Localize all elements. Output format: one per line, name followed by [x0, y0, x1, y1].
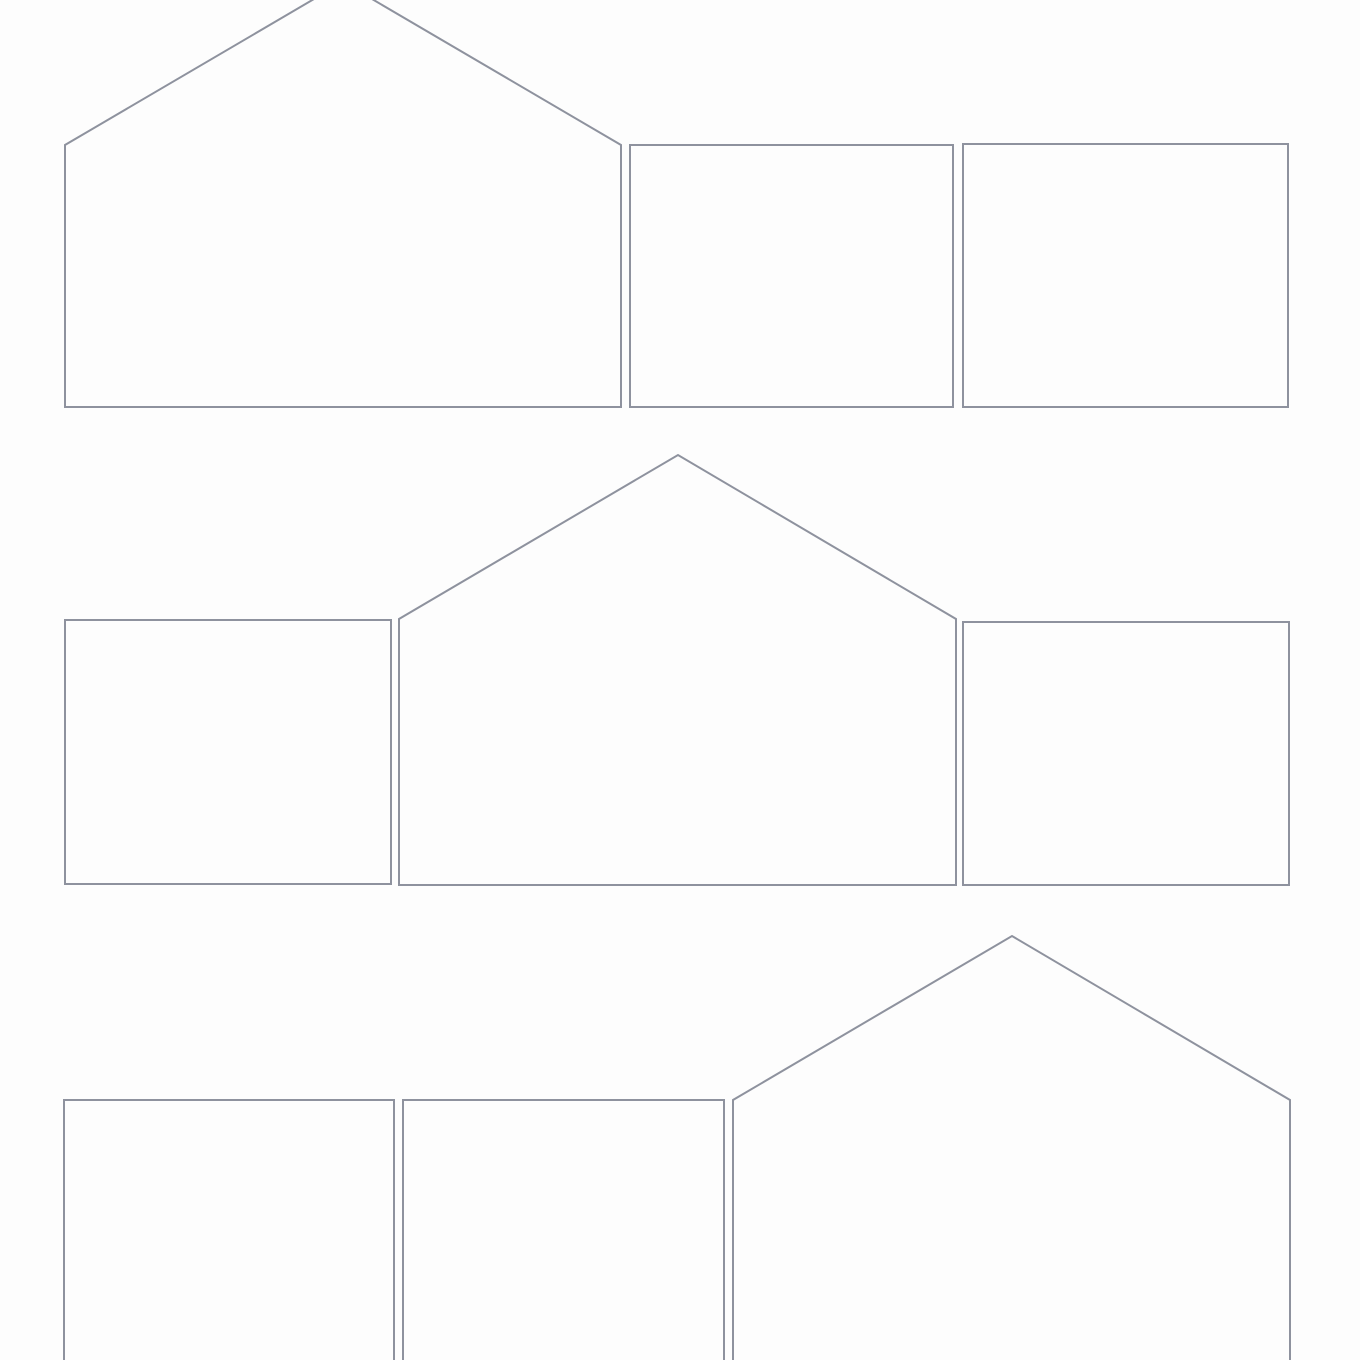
- rectangle-outline-row1-a: [630, 145, 953, 407]
- template-canvas: [0, 0, 1360, 1360]
- house-pentagon-outline-row2: [399, 455, 956, 885]
- row-2: [65, 455, 1289, 885]
- house-pentagon-outline-row3: [733, 936, 1290, 1360]
- row-1: [65, 0, 1288, 407]
- house-pentagon-outline-row1: [65, 0, 621, 407]
- rectangle-outline-row2-a: [65, 620, 391, 884]
- rectangle-outline-row3-b: [403, 1100, 724, 1360]
- rectangle-outline-row3-a: [64, 1100, 394, 1360]
- row-3: [64, 936, 1290, 1360]
- rectangle-outline-row2-b: [963, 622, 1289, 885]
- page-background: [0, 0, 1360, 1360]
- rectangle-outline-row1-b: [963, 144, 1288, 407]
